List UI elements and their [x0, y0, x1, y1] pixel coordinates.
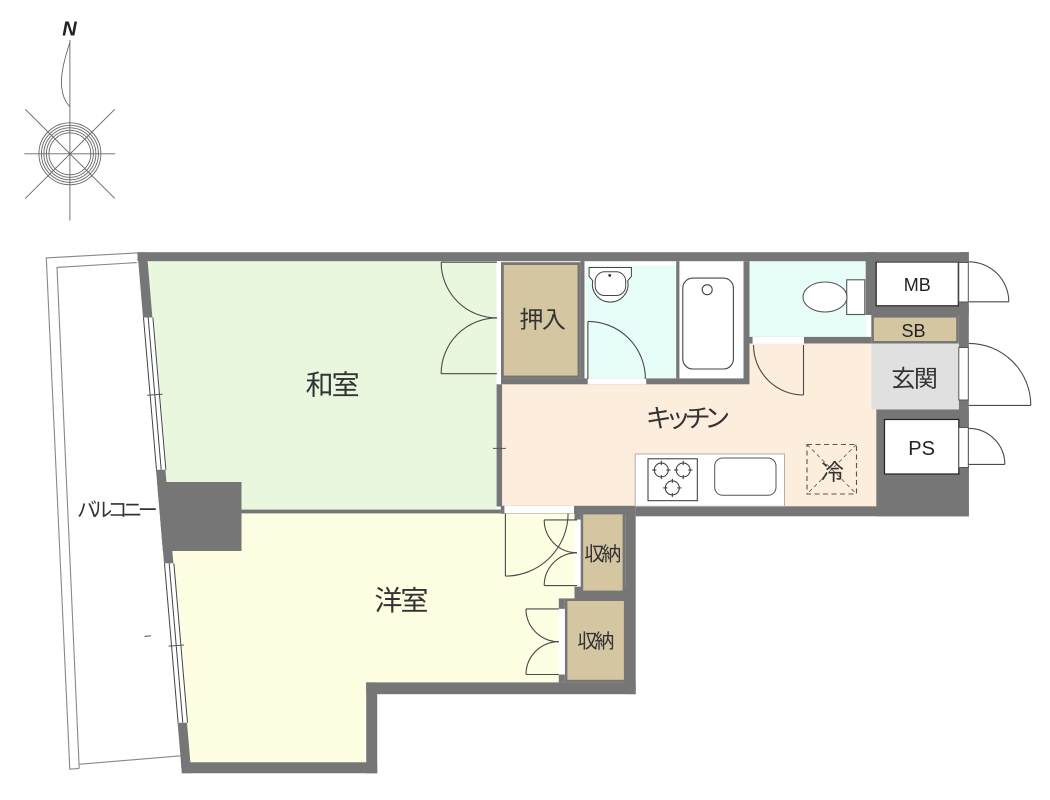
svg-text:SB: SB — [901, 321, 925, 341]
svg-text:MB: MB — [904, 275, 931, 295]
svg-text:PS: PS — [908, 438, 935, 460]
svg-text:N: N — [62, 19, 77, 41]
